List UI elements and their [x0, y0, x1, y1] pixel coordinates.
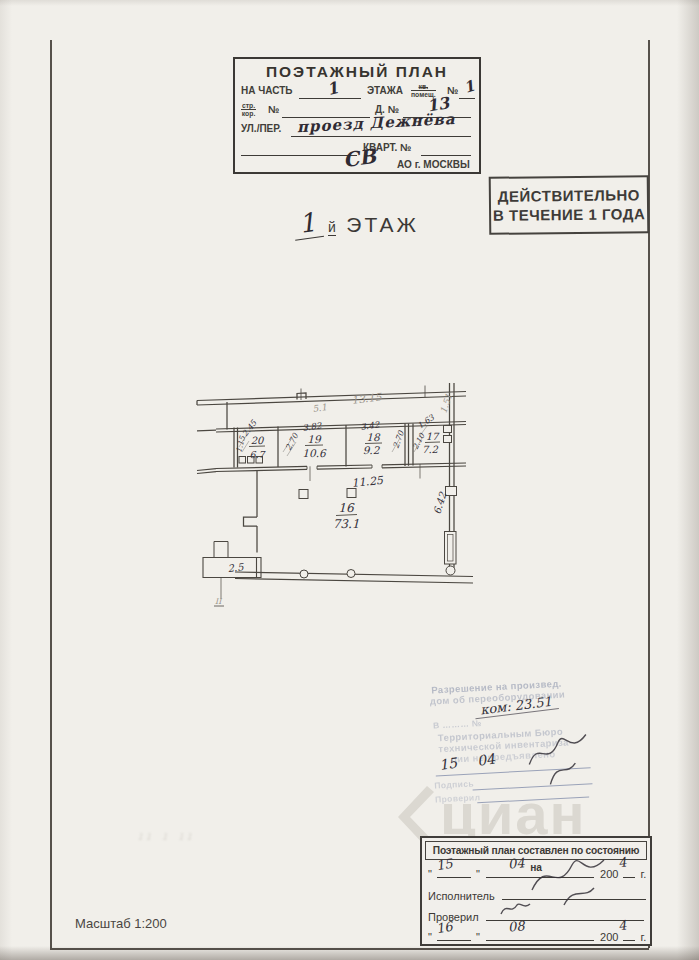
- header-address-stamp: ПОЭТАЖНЫЙ ПЛАН НА ЧАСТЬ 1 ЭТАЖА кв. поме…: [233, 57, 481, 174]
- column-round: [347, 570, 355, 578]
- floor-title: 1 й ЭТАЖ: [293, 208, 473, 239]
- dim-r18-h: 2.70: [391, 429, 406, 450]
- floor-number-handwritten: 1: [291, 206, 324, 241]
- label-ul-per: УЛ./ПЕР.: [241, 123, 281, 134]
- room-20-area: 6.7: [249, 449, 266, 460]
- wall: [197, 396, 466, 405]
- hw-day2: 16: [435, 919, 454, 937]
- scanned-floor-plan-sheet: ПОЭТАЖНЫЙ ПЛАН НА ЧАСТЬ 1 ЭТАЖА кв. поме…: [0, 0, 699, 960]
- quote-mark: ": [428, 868, 432, 880]
- wall: [216, 466, 466, 472]
- quote-mark: ": [428, 931, 432, 943]
- window-inner: [448, 535, 454, 562]
- label-etazha: ЭТАЖА: [367, 85, 403, 96]
- permit-line3: В ……… №: [433, 718, 482, 731]
- signature: [522, 850, 614, 908]
- scale-label: Масштаб 1:200: [75, 916, 167, 931]
- dim-corridor: 5.1: [312, 402, 328, 414]
- partition: [405, 424, 409, 467]
- faint-pencil-marks: ıı ı ıı: [138, 828, 195, 843]
- scan-edge: [0, 0, 12, 960]
- annex-recess: [214, 542, 228, 558]
- wall: [450, 383, 455, 393]
- label-ao-moscow: АО г. МОСКВЫ: [397, 159, 470, 170]
- dim-r19-h: 2.70: [284, 431, 301, 452]
- wall: [244, 471, 258, 553]
- floor-plan-drawing: 5.1 13.15 1.51 2.45 1.15 20 6.7 3.82 2.7…: [193, 380, 485, 615]
- column-round: [446, 566, 455, 575]
- wall: [197, 430, 216, 431]
- sheet-frame-left: [50, 40, 52, 948]
- vent-shaft: [444, 436, 452, 443]
- validity-line1: ДЕЙСТВИТЕЛЬНО: [491, 185, 647, 206]
- fixture: [239, 457, 246, 464]
- year-suffix1: г.: [641, 868, 647, 880]
- label-str-kor: стр. кор.: [241, 102, 256, 117]
- column: [299, 490, 308, 499]
- compiled-box: Поэтажный план составлен по состоянию на…: [420, 836, 652, 946]
- dim-top: 13.15: [351, 390, 384, 406]
- quote-mark: ": [476, 868, 480, 880]
- label-no-1: №: [447, 85, 458, 96]
- validity-stamp: ДЕЙСТВИТЕЛЬНО В ТЕЧЕНИЕ 1 ГОДА: [489, 175, 650, 235]
- dim-r19-w: 3.82: [302, 420, 323, 433]
- label-no-2: №: [268, 104, 279, 115]
- column-round: [300, 570, 308, 578]
- room-17-area: 7.2: [422, 444, 439, 455]
- label-na-chast: НА ЧАСТЬ: [241, 85, 293, 96]
- dim-right-top: 1.51: [438, 392, 454, 414]
- blank-month2: [486, 928, 594, 941]
- floor-suffix: й: [328, 219, 336, 236]
- room-20-number: 20: [251, 435, 265, 446]
- scan-edge: [0, 0, 699, 6]
- dim-annex: 2.5: [227, 561, 245, 574]
- floor-word: ЭТАЖ: [346, 213, 419, 236]
- scan-edge: [677, 0, 699, 960]
- year-prefix2: 200: [600, 931, 618, 943]
- hw-month2: 08: [507, 918, 525, 935]
- hw-day1: 15: [435, 856, 454, 874]
- wall-stub: [297, 393, 306, 400]
- wall: [197, 469, 216, 474]
- executor-label: Исполнитель: [428, 890, 495, 902]
- hw-ao-code: СВ: [341, 144, 377, 172]
- pencil-mark: II: [215, 597, 223, 606]
- stamp-title: ПОЭТАЖНЫЙ ПЛАН: [235, 63, 479, 81]
- room-18-number: 18: [366, 431, 381, 443]
- scan-edge: [0, 946, 699, 960]
- compiled-date-row2: " " 200 г.: [428, 928, 644, 943]
- dim-r16-h: 6.42: [431, 490, 448, 515]
- room-18-area: 9.2: [363, 444, 381, 456]
- room-19-number: 19: [307, 433, 322, 445]
- validity-line2: В ТЕЧЕНИЕ 1 ГОДА: [491, 204, 647, 225]
- year-suffix2: г.: [641, 931, 647, 943]
- quote-mark: ": [476, 931, 480, 943]
- blank-kvart: [421, 143, 471, 156]
- blank-left: [241, 143, 357, 156]
- room-17-number: 17: [426, 431, 440, 442]
- wall: [197, 392, 466, 401]
- room-16-number: 16: [338, 501, 355, 515]
- hw-permit-day: 15: [438, 755, 458, 773]
- vent-shaft: [444, 426, 452, 433]
- room-16-area: 73.1: [333, 517, 360, 531]
- dim-r16-w: 11.25: [351, 474, 385, 490]
- hw-permit-month: 04: [476, 750, 496, 769]
- dim-r17-w: 1.63: [416, 413, 436, 431]
- wall: [216, 463, 466, 469]
- room-19-area: 10.6: [302, 447, 327, 459]
